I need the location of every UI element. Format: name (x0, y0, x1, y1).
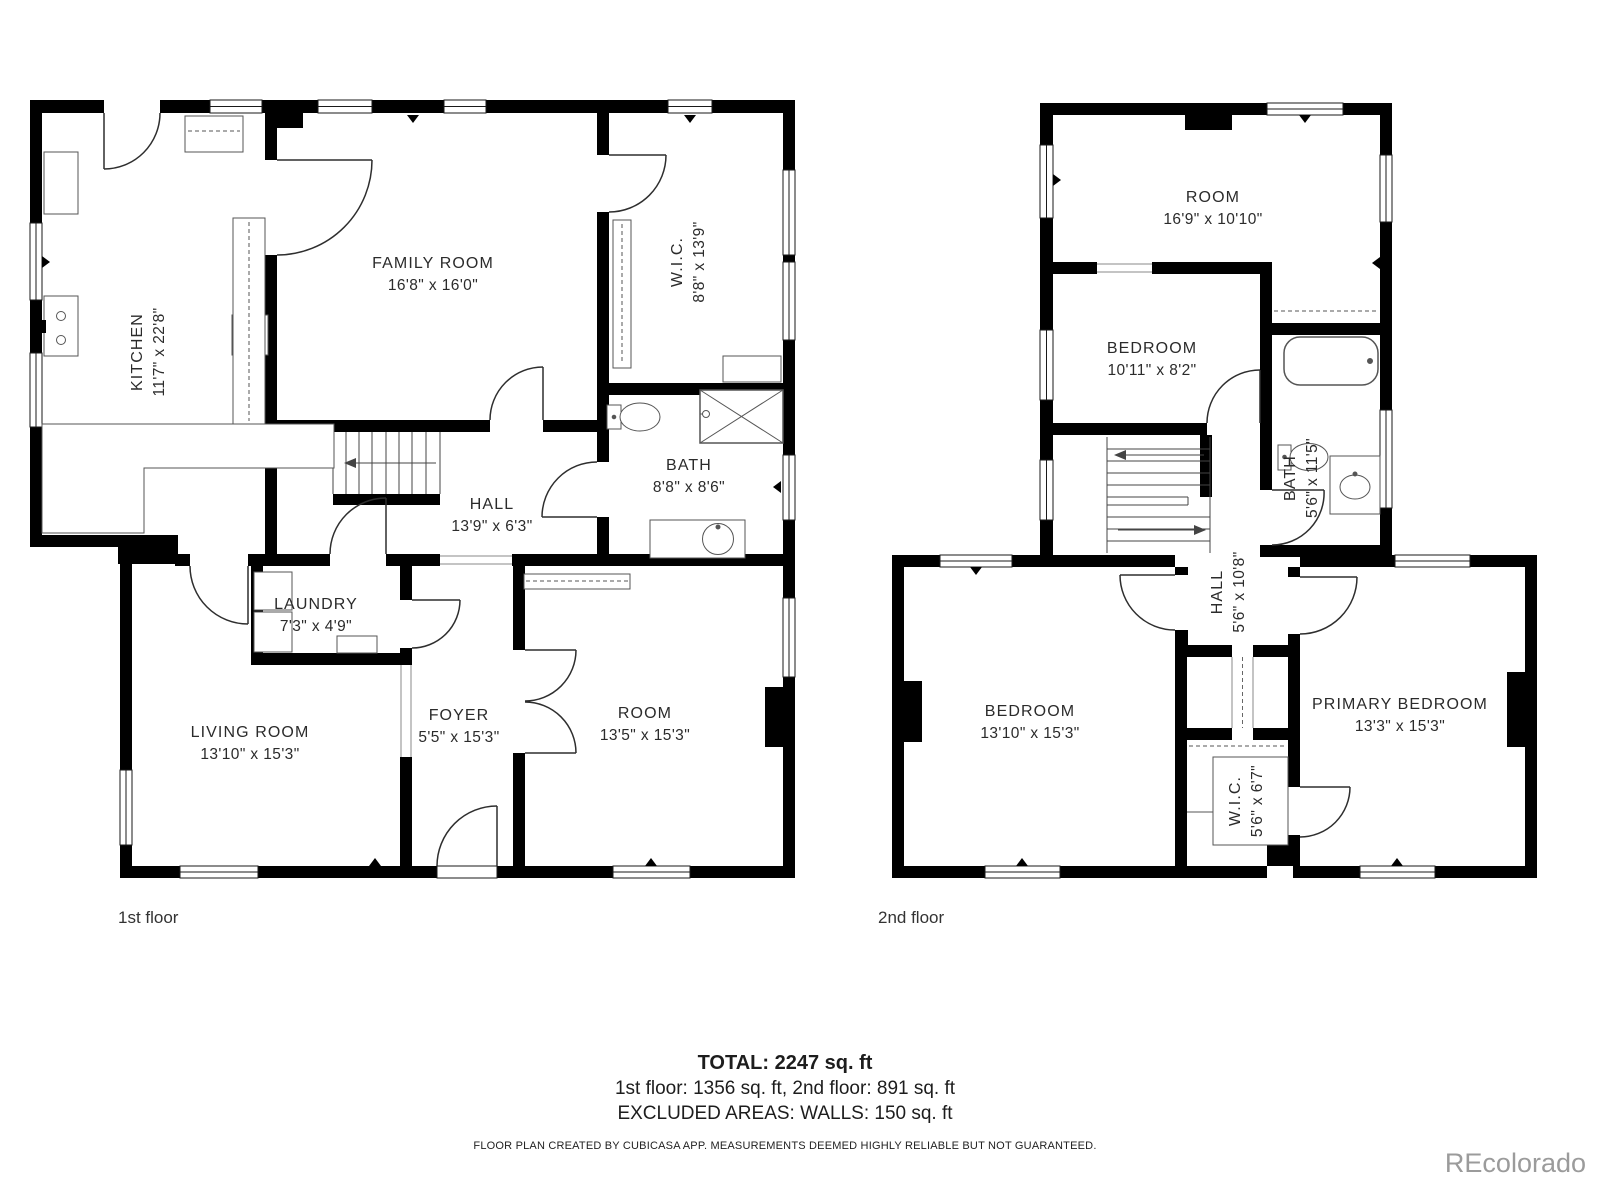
shower-icon (700, 390, 783, 443)
total-area-text: TOTAL: 2247 sq. ft (335, 1052, 1235, 1075)
refrigerator-icon (185, 116, 243, 152)
washer-dryer-icon (254, 572, 377, 653)
second-floor-plan (892, 103, 1537, 878)
closet-rod-icon (613, 220, 781, 382)
kitchen-counter-icon (42, 152, 334, 533)
floor-areas-text: 1st floor: 1356 sq. ft, 2nd floor: 891 s… (335, 1078, 1235, 1100)
disclaimer-text: FLOOR PLAN CREATED BY CUBICASA APP. MEAS… (335, 1140, 1235, 1152)
bathtub-icon (1284, 337, 1378, 385)
bathroom-sink-icon (650, 520, 745, 558)
kitchen-island-icon (233, 218, 265, 425)
toilet-icon (607, 403, 660, 431)
second-floor-caption: 2nd floor (878, 908, 944, 928)
toilet-icon (1278, 444, 1328, 471)
first-floor-plan (30, 100, 795, 878)
stairs-icon (333, 432, 440, 494)
room-closet-icon (524, 574, 630, 589)
bathroom-sink-icon (1330, 456, 1380, 514)
first-floor-caption: 1st floor (118, 908, 178, 928)
fixtures-layer (1187, 311, 1380, 845)
floor-plan-drawing (0, 0, 1600, 1200)
openings-layer (401, 556, 512, 757)
doors-layer (104, 113, 666, 866)
area-summary: TOTAL: 2247 sq. ft 1st floor: 1356 sq. f… (335, 1052, 1235, 1152)
stairs-icon (1107, 437, 1210, 553)
recolorado-watermark: REcolorado (1445, 1148, 1586, 1179)
excluded-areas-text: EXCLUDED AREAS: WALLS: 150 sq. ft (335, 1103, 1235, 1125)
closet-shelves-icon (1187, 746, 1288, 845)
